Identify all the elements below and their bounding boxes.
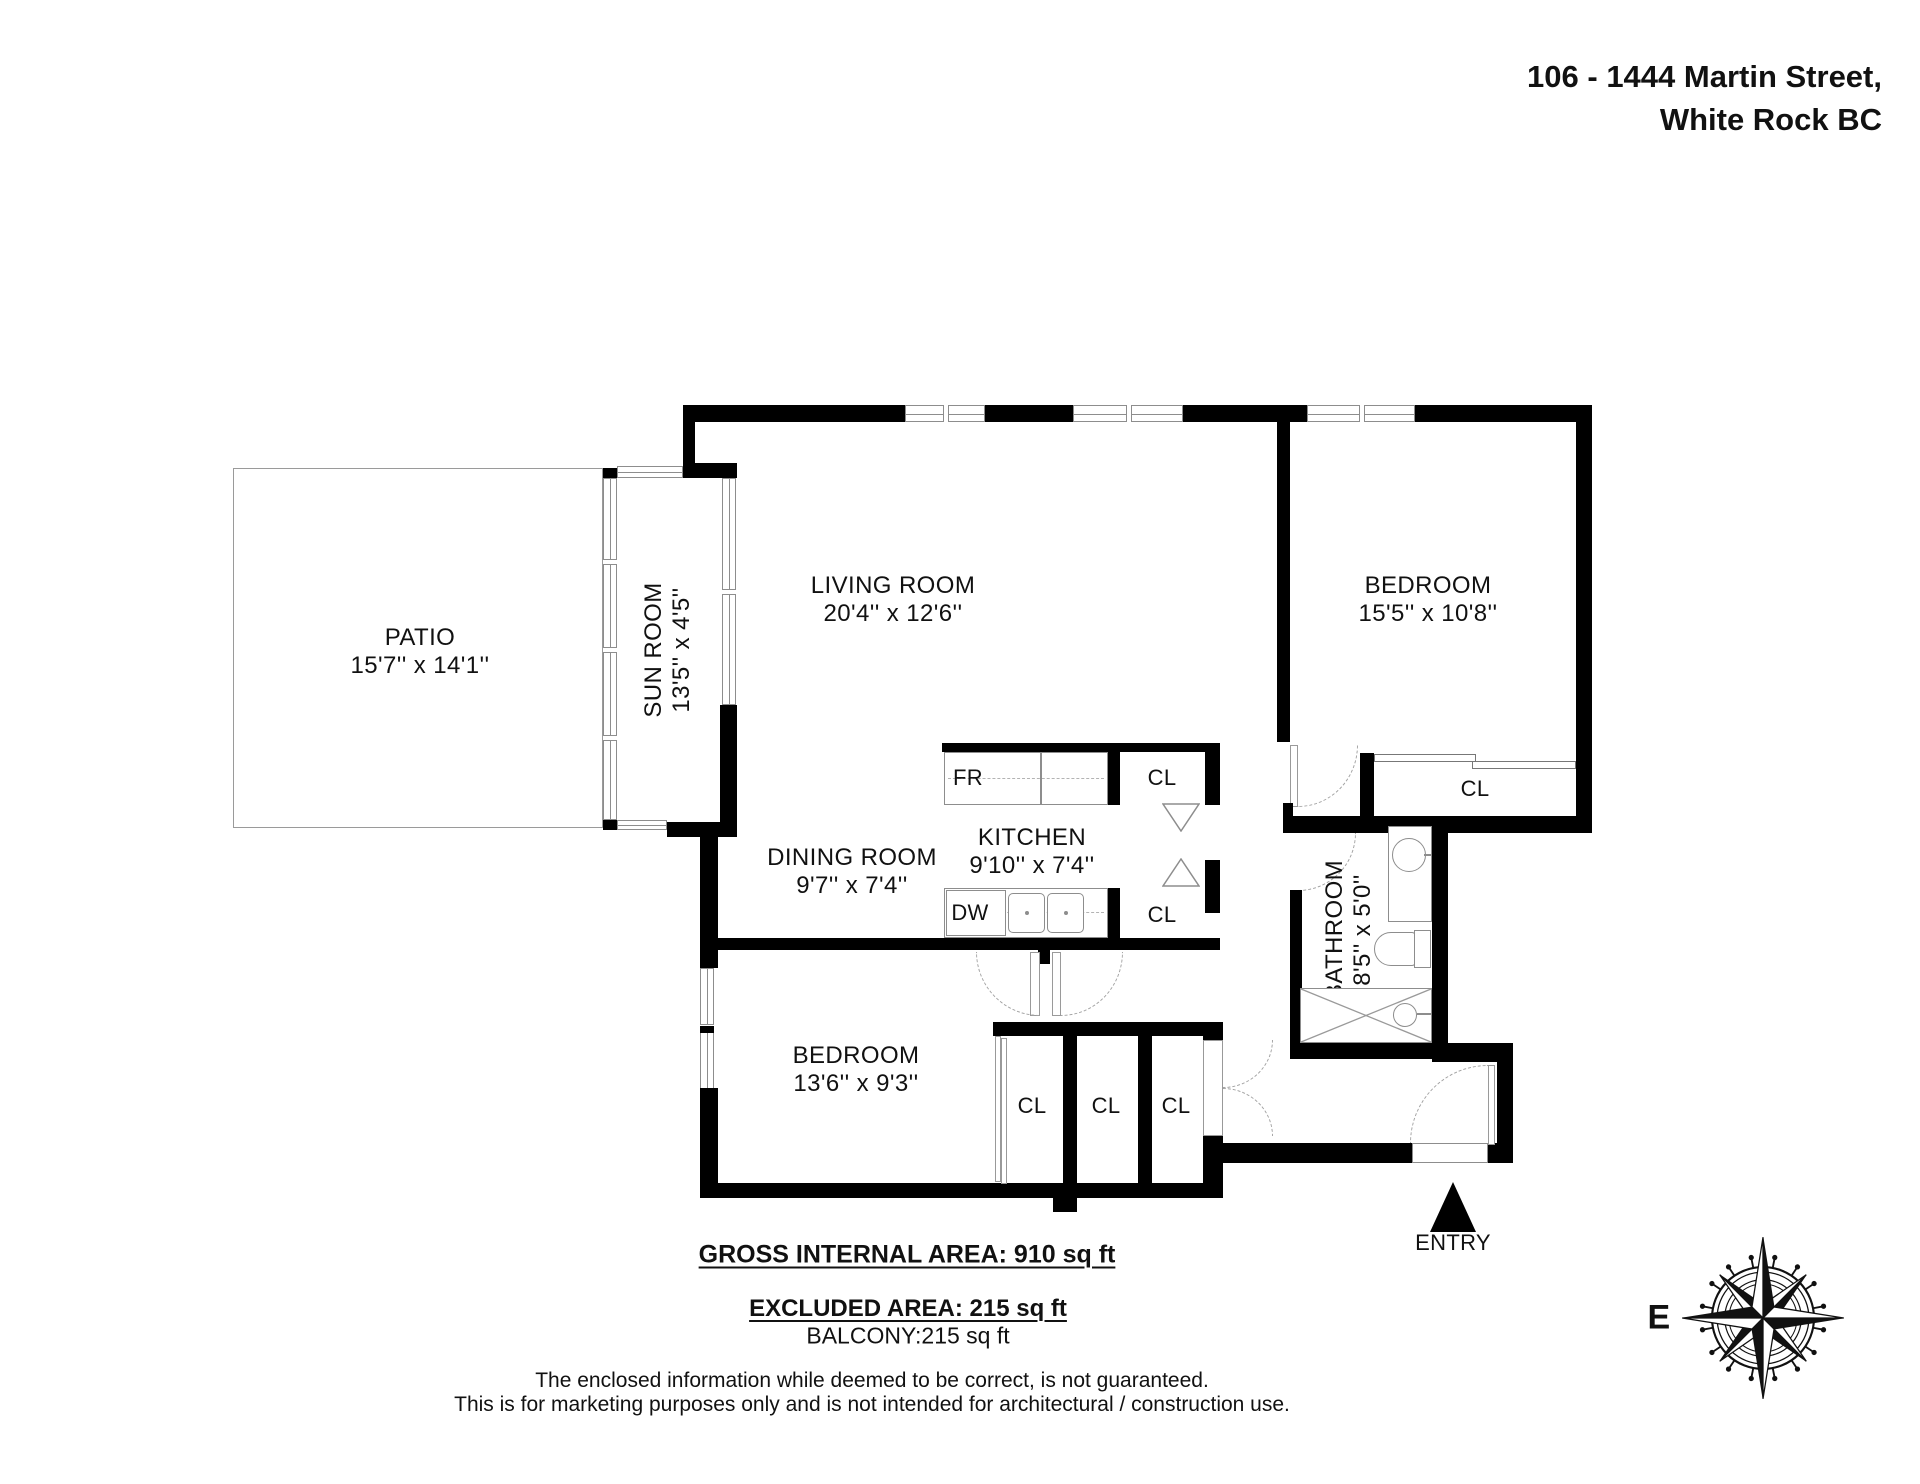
window-top-living-2	[1073, 405, 1183, 422]
shower-control-icon	[1393, 1003, 1417, 1027]
shower-handle-icon	[1417, 1013, 1431, 1015]
window-sunroom-east	[722, 478, 736, 705]
window-sunroom-west	[603, 478, 617, 820]
dishwasher-label: DW	[951, 900, 988, 926]
closet3-door-arc-bottom-icon	[1223, 1088, 1273, 1136]
window-sunroom-south	[617, 820, 667, 830]
wall-top-4	[1415, 405, 1592, 422]
gross-area-text: GROSS INTERNAL AREA: 910 sq ft	[699, 1241, 1116, 1270]
disclaimer-line-2: This is for marketing purposes only and …	[454, 1393, 1290, 1417]
bifold-door-up-icon	[1162, 858, 1200, 887]
wall-kitchen-cl-divider-top	[1108, 752, 1120, 805]
wall-bedroom-second-west-lower	[700, 1088, 718, 1198]
wall-bathroom-south	[1290, 1043, 1448, 1059]
hall-closet-1-label: CL	[1018, 1093, 1047, 1119]
bifold-door-down-icon	[1162, 803, 1200, 832]
closet3-door-opening	[1203, 1040, 1223, 1136]
wall-living-bedroom-divider	[1277, 422, 1290, 742]
dining-room-label: DINING ROOM 9'7'' x 7'4''	[767, 844, 937, 900]
fridge-divider	[1040, 752, 1042, 805]
bedroom-primary-door-arc-icon	[1298, 745, 1358, 807]
wall-bathroom-east	[1432, 833, 1448, 1045]
wall-bedroom-closet-cap	[1360, 753, 1374, 816]
wall-closet-block-top	[993, 1022, 1223, 1036]
wall-top-1	[683, 405, 905, 422]
hall-closet-2-label: CL	[1092, 1093, 1121, 1119]
hall-door-arc-icon	[1061, 952, 1123, 1016]
bedroom-primary-closet-label: CL	[1461, 776, 1490, 802]
sun-room-label: SUN ROOM 13'5'' x 4'5''	[640, 582, 696, 717]
wall-bottom-stub	[1053, 1198, 1077, 1212]
wall-kitchen-cl-cap-top	[1205, 743, 1220, 805]
window-sunroom-north	[617, 466, 683, 478]
wall-entry-south	[1220, 1143, 1412, 1163]
wall-kitchen-cl-cap-bottom	[1205, 860, 1220, 913]
wall-entry-south-corner	[1488, 1143, 1513, 1163]
fridge-label: FR	[953, 765, 983, 791]
wall-sunroom-cap-bottom	[603, 820, 617, 830]
closet3-door-arc-top-icon	[1223, 1040, 1273, 1088]
page-title: 106 - 1444 Martin Street, White Rock BC	[1527, 55, 1882, 141]
wall-dining-south	[700, 938, 1220, 950]
floorplan-page: 106 - 1444 Martin Street, White Rock BC …	[0, 0, 1920, 1484]
compass-east-label: E	[1647, 1299, 1670, 1338]
address-line-2: White Rock BC	[1527, 98, 1882, 141]
wall-sunroom-top-corner	[683, 463, 737, 478]
wall-closet-divider-2	[1138, 1022, 1152, 1198]
hall-closet-3-label: CL	[1162, 1093, 1191, 1119]
kitchen-closet-bottom-label: CL	[1148, 902, 1177, 928]
wall-sunroom-east-lower	[720, 705, 737, 837]
faucet-dot-right	[1064, 911, 1068, 915]
balcony-area-text: BALCONY:215 sq ft	[806, 1323, 1009, 1350]
faucet-dot-left	[1025, 911, 1029, 915]
bedroom-closet-slider-1	[1374, 754, 1476, 762]
window-bedroom-second-divider	[700, 1026, 714, 1033]
patio-label: PATIO 15'7'' x 14'1''	[351, 624, 490, 680]
bedroom-primary-label: BEDROOM 15'5'' x 10'8''	[1359, 572, 1498, 628]
kitchen-closet-top-label: CL	[1148, 765, 1177, 791]
window-top-bedroom	[1307, 405, 1415, 422]
bedroom-second-label: BEDROOM 13'6'' x 9'3''	[793, 1042, 920, 1098]
entry-door-arc-icon	[1410, 1065, 1488, 1143]
wall-right	[1576, 422, 1592, 833]
bedroom-closet-slider-2	[1472, 761, 1576, 769]
wall-bathroom-bedroom	[1283, 816, 1592, 833]
wall-closet-divider-1	[1063, 1022, 1077, 1198]
bathroom-faucet-icon	[1424, 854, 1432, 856]
entry-arrow-icon	[1430, 1182, 1476, 1232]
excluded-area-text: EXCLUDED AREA: 215 sq ft	[749, 1295, 1067, 1323]
disclaimer-line-1: The enclosed information while deemed to…	[535, 1369, 1209, 1393]
entry-label: ENTRY	[1415, 1230, 1491, 1256]
wall-kitchen-cl-divider-bottom	[1108, 888, 1120, 938]
address-line-1: 106 - 1444 Martin Street,	[1527, 55, 1882, 98]
bedroom-primary-door-leaf	[1290, 745, 1298, 807]
compass-rose-icon	[1678, 1233, 1848, 1403]
wall-sunroom-cap-top	[603, 468, 617, 478]
wall-entry-step	[1432, 1043, 1513, 1062]
wall-top-3	[1183, 405, 1307, 422]
hall-door-leaf	[1052, 952, 1061, 1016]
wall-top-2	[985, 405, 1073, 422]
window-top-living-1	[905, 405, 985, 422]
entry-threshold	[1412, 1143, 1488, 1163]
kitchen-label: KITCHEN 9'10'' x 7'4''	[969, 824, 1094, 880]
wall-kitchen-top	[942, 743, 1220, 752]
bathroom-sink-icon	[1392, 838, 1426, 872]
bedroom-second-door-arc-icon	[976, 952, 1040, 1016]
bathroom-label: BATHROOM 8'5'' x 5'0''	[1321, 860, 1377, 1000]
closet1-slider-2	[1001, 1038, 1007, 1184]
living-room-label: LIVING ROOM 20'4'' x 12'6''	[811, 572, 975, 628]
toilet-tank-icon	[1414, 930, 1431, 968]
entry-door-leaf	[1488, 1065, 1495, 1145]
toilet-bowl-icon	[1374, 932, 1416, 966]
